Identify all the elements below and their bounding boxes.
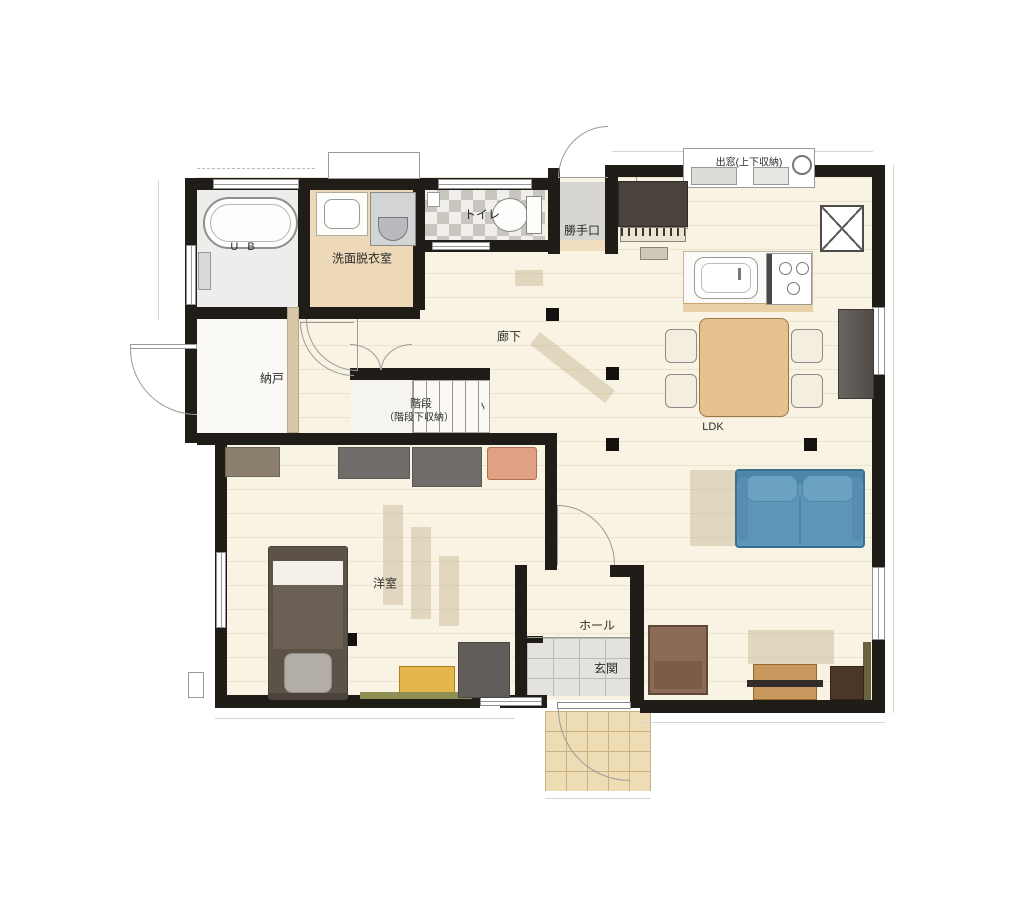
sofa-cushion [745, 475, 798, 502]
kitchen-sink-bowl [701, 263, 751, 293]
piano-keyboard [620, 227, 686, 242]
floor-shadow [690, 470, 736, 546]
bed-headboard [269, 693, 347, 699]
upright-piano [618, 181, 688, 227]
sofa-armrest [738, 477, 748, 541]
bay-cabinet-right [753, 167, 789, 185]
bed-blanket [273, 585, 343, 649]
gray-cabinet [458, 642, 510, 698]
entrance-door-leaf [557, 702, 631, 709]
dimension-line [215, 718, 515, 719]
dimension-line [158, 180, 159, 320]
genkan-step-line [527, 637, 630, 638]
bedroom-side-window [216, 552, 226, 628]
backdoor-door-arc [558, 126, 608, 178]
bedroom-label: 洋室 [373, 575, 397, 592]
washbasin-counter [316, 192, 368, 236]
exterior-mask [183, 445, 215, 710]
entrance-label: 玄関 [594, 660, 618, 677]
sofa [735, 469, 865, 548]
tv [747, 680, 823, 687]
stove [766, 253, 812, 305]
wall [298, 190, 310, 310]
wall [545, 445, 557, 570]
wall [872, 640, 885, 713]
pillar [546, 308, 559, 321]
dining-chair [791, 329, 823, 363]
stairs-sublabel: （階段下収納） [384, 409, 454, 424]
burner [779, 262, 792, 275]
wall [605, 165, 618, 254]
eave-line [197, 168, 315, 169]
refrigerator [820, 205, 864, 252]
floor-shadow [439, 556, 459, 626]
stove-edge [767, 254, 772, 304]
shelf-unit [225, 447, 280, 477]
bed [268, 546, 348, 700]
toilet-cabinet [427, 192, 440, 207]
bed-sheet [273, 561, 343, 585]
stairs-closet-area [350, 380, 412, 433]
bay-window-label: 出窓(上下収納) [716, 154, 783, 169]
bathtub-inner [210, 204, 291, 242]
storage-ext-door-arc [130, 349, 197, 415]
washing-machine [370, 192, 416, 246]
bath-side-window [186, 245, 196, 305]
sofa-seat-split [799, 495, 801, 543]
toilet-window [438, 179, 532, 189]
wall [185, 307, 420, 319]
washroom-label: 洗面脱衣室 [332, 250, 392, 267]
wall [872, 165, 885, 307]
burner [787, 282, 800, 295]
storage-box [830, 666, 864, 700]
toilet-tank [526, 196, 542, 234]
dining-chair [665, 374, 697, 408]
bath-window [213, 179, 299, 189]
floor-shadow [748, 630, 834, 664]
tall-cabinet [838, 309, 874, 399]
wall [515, 565, 527, 708]
hall-label: ホール [579, 617, 615, 634]
bed-pillow [284, 653, 332, 693]
washroom-bay-window [328, 152, 420, 179]
bedroom-bottom-window [480, 697, 542, 706]
bay-round-item [792, 155, 812, 175]
curtain-strip [863, 642, 871, 700]
floor-mat [360, 692, 472, 699]
wall [872, 375, 885, 567]
dimension-line [640, 722, 885, 723]
burner [796, 262, 809, 275]
sofa-cushion [802, 475, 855, 502]
corridor-label: 廊下 [497, 328, 521, 345]
kitchen-sink [694, 257, 758, 299]
toilet-sliding-door [432, 242, 490, 250]
dining-chair [665, 329, 697, 363]
piano-bench [640, 247, 668, 260]
backdoor-label: 勝手口 [564, 222, 600, 239]
sofa-armrest [852, 477, 862, 541]
backdoor-step [557, 240, 605, 251]
washbasin-bowl [324, 199, 360, 229]
pillar [804, 438, 817, 451]
kitchen-faucet [738, 268, 741, 280]
ldk-right-window-lower [872, 567, 885, 640]
bath-washstand [198, 252, 211, 290]
bay-cabinet-left [691, 167, 737, 185]
washing-machine-door [378, 217, 408, 241]
pillar [606, 438, 619, 451]
wall [640, 700, 885, 713]
study-chair [487, 447, 537, 480]
shoe-cabinet [648, 625, 708, 695]
wall [610, 565, 630, 577]
wall [197, 433, 557, 445]
dining-chair [791, 374, 823, 408]
floor-shadow [411, 527, 431, 619]
floor-shadow [515, 270, 543, 286]
shoe-cabinet-shade [654, 661, 702, 689]
desk-unit [412, 447, 482, 487]
storage-partition [287, 307, 299, 433]
dimension-line [893, 165, 894, 713]
pillar [606, 367, 619, 380]
toilet-label: トイレ [464, 206, 500, 223]
storage-label: 納戸 [260, 370, 284, 387]
dimension-line [545, 798, 651, 799]
floor-plan: U B 洗面脱衣室 トイレ 勝手口 出窓(上下収納) 廊下 納戸 階段 （階段下… [0, 0, 1024, 917]
wall [630, 565, 644, 708]
dining-table [699, 318, 789, 417]
bath-label: U B [230, 241, 257, 253]
meter-box [188, 672, 204, 698]
desk-unit [338, 447, 410, 479]
ldk-label: LDK [702, 421, 723, 433]
